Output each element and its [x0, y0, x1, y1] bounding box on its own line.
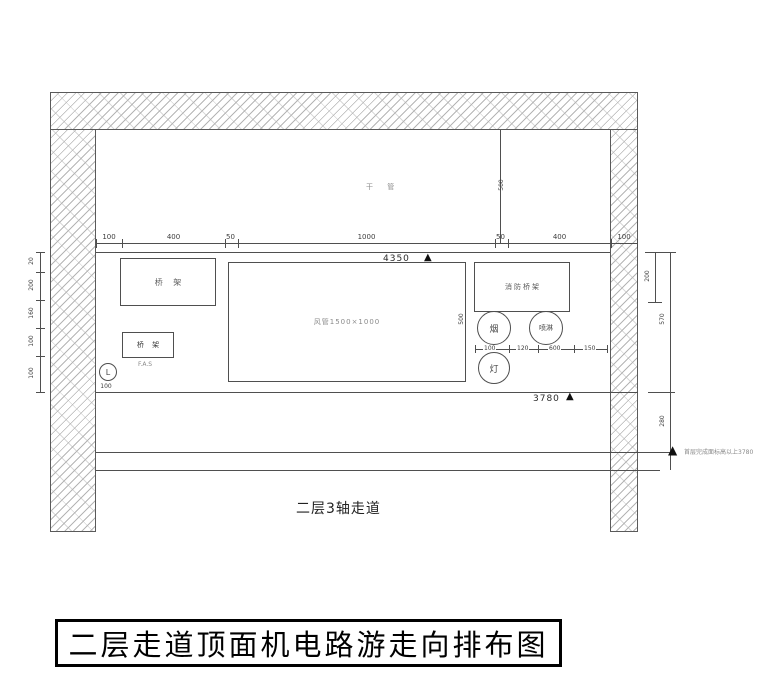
dim-tick	[36, 272, 45, 273]
right-wall	[610, 130, 638, 532]
top-dim-0: 100	[96, 234, 122, 241]
corridor-line-lower	[96, 470, 660, 471]
dim-tick	[36, 300, 45, 301]
ceiling-drop-dim: 500	[499, 175, 505, 195]
fas-tray-sub-label: F.A.S	[138, 362, 152, 368]
left-dim-2: 160	[29, 303, 35, 323]
top-dim-1: 400	[122, 234, 225, 241]
right-inner-dim-line	[655, 252, 656, 302]
axis-bubble: L	[99, 363, 117, 381]
left-cable-tray-label: 桥 架	[155, 277, 186, 288]
note-triangle-icon: ▲	[668, 444, 677, 456]
top-dim-2: 50	[223, 234, 238, 241]
top-dim-6: 100	[611, 234, 637, 241]
lower-level-line	[96, 392, 638, 393]
right-dim-1: 570	[660, 309, 666, 329]
ceiling-level-line	[96, 252, 610, 253]
drawing-title: 二层走道顶面机电路游走向排布图	[68, 622, 548, 664]
light-label: 灯	[489, 362, 498, 375]
dim-tick	[36, 356, 45, 357]
left-dim-0: 20	[29, 251, 35, 271]
corridor-line-upper	[96, 452, 672, 453]
top-dim-5: 400	[508, 234, 611, 241]
left-dim-line	[40, 252, 41, 392]
fas-tray: 桥 架	[122, 332, 174, 358]
left-cable-tray: 桥 架	[120, 258, 216, 306]
air-duct: 风管1500×1000	[228, 262, 466, 382]
smoke-detector-bubble: 烟	[477, 311, 511, 345]
dim-tick	[538, 345, 539, 353]
note-text: 首层完成面标高以上3780	[684, 450, 762, 456]
cluster-dim-3: 150	[583, 346, 596, 352]
right-outer-dim-line	[670, 252, 671, 470]
drawing-canvas: 干 管 500 100 400 50 1000 50 400 100 4350 …	[0, 0, 764, 676]
corridor-label: 二层3轴走道	[296, 498, 381, 518]
light-bubble: 灯	[478, 352, 510, 384]
dim-tick	[648, 302, 662, 303]
dim-tick	[645, 252, 676, 253]
dim-tick	[648, 392, 675, 393]
right-dim-2: 280	[660, 411, 666, 431]
axis-offset-dim: 100	[94, 384, 118, 390]
cluster-dim-1: 120	[516, 346, 529, 352]
dim-tick	[607, 345, 608, 353]
dim-tick	[36, 328, 45, 329]
air-duct-height-dim: 500	[459, 309, 465, 329]
air-duct-label: 风管1500×1000	[314, 319, 381, 326]
top-dim-3: 1000	[238, 234, 495, 241]
top-dim-line	[96, 243, 638, 244]
dim-tick	[36, 392, 45, 393]
top-slab-wall	[50, 92, 638, 130]
right-cable-tray-label: 消防桥架	[505, 282, 541, 292]
title-block: 二层走道顶面机电路游走向排布图	[55, 619, 562, 667]
left-dim-1: 200	[29, 275, 35, 295]
lower-level-triangle-icon: ▲	[566, 392, 574, 402]
left-wall	[50, 130, 96, 532]
cluster-dim-2: 600	[548, 346, 561, 352]
dim-tick	[475, 345, 476, 353]
dim-tick	[36, 252, 45, 253]
dim-tick	[637, 239, 638, 248]
right-dim-0: 200	[645, 266, 651, 286]
fas-tray-label: 桥 架	[134, 342, 162, 349]
lower-level-value: 3780	[533, 394, 560, 404]
sprinkler-bubble: 喷淋	[529, 311, 563, 345]
top-dim-4: 50	[493, 234, 508, 241]
right-cable-tray: 消防桥架	[474, 262, 570, 312]
ceiling-pipe-label: 干 管	[366, 184, 400, 191]
cluster-dim-0: 100	[483, 346, 496, 352]
sprinkler-label: 喷淋	[539, 323, 553, 333]
left-dim-4: 100	[29, 363, 35, 383]
dim-tick	[574, 345, 575, 353]
dim-tick	[509, 345, 510, 353]
smoke-detector-label: 烟	[489, 322, 498, 335]
left-dim-3: 100	[29, 331, 35, 351]
axis-bubble-label: L	[106, 368, 110, 377]
